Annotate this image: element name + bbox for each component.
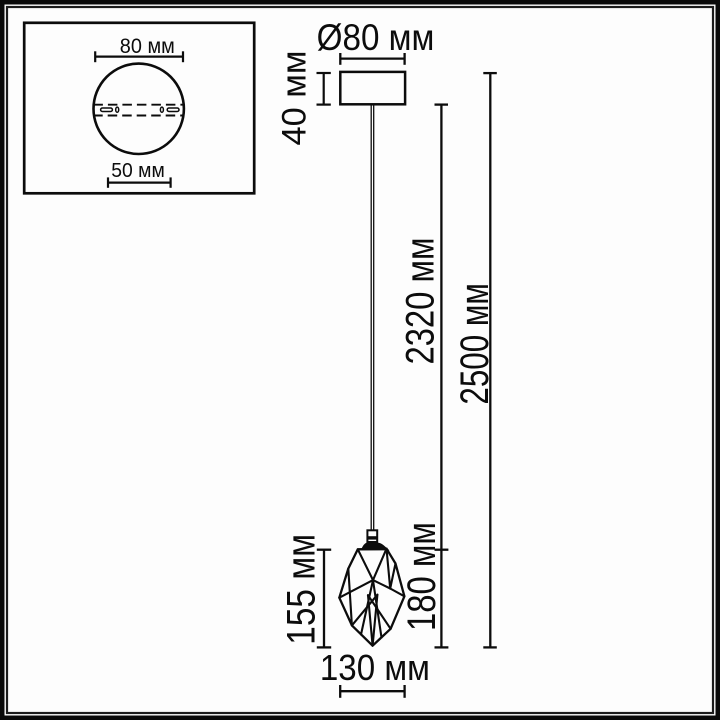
svg-text:40 мм: 40 мм [275,51,313,146]
svg-text:80 мм: 80 мм [120,34,175,58]
svg-text:155 мм: 155 мм [279,534,323,645]
svg-text:180 мм: 180 мм [400,522,444,631]
svg-text:Ø80 мм: Ø80 мм [317,17,435,58]
svg-text:50 мм: 50 мм [111,159,165,182]
svg-text:130 мм: 130 мм [320,647,430,688]
svg-text:2320 мм: 2320 мм [398,238,442,365]
